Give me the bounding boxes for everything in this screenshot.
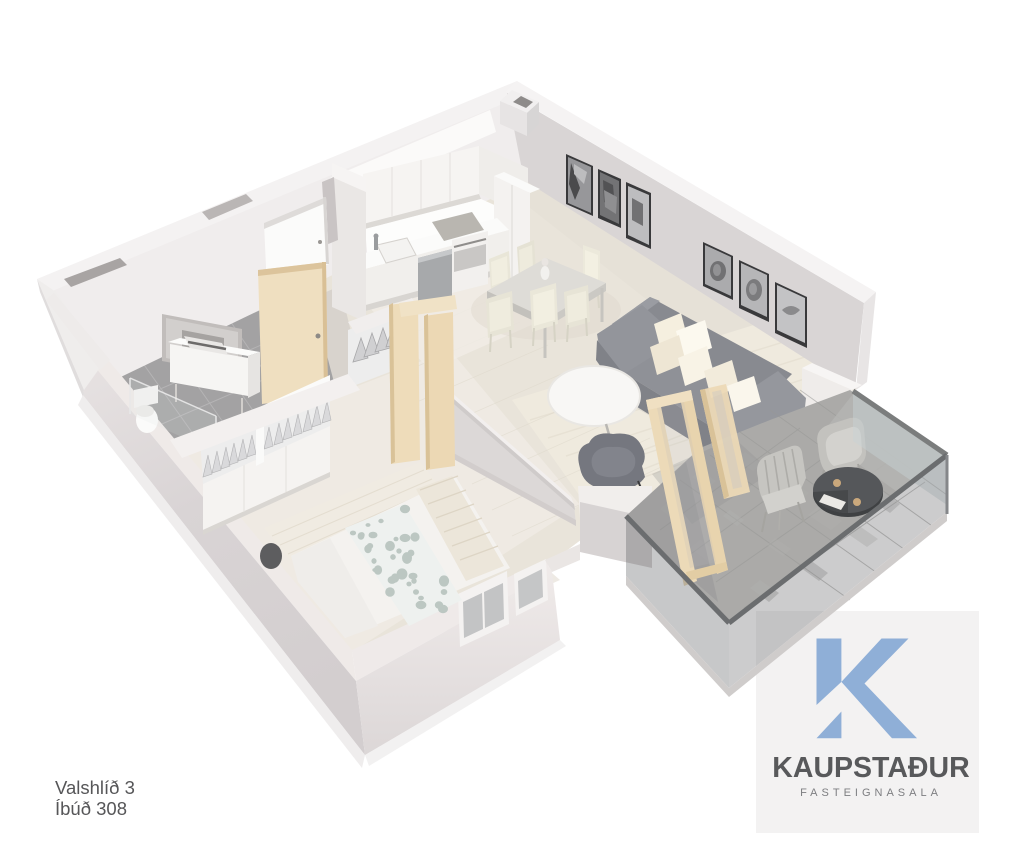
svg-text:Íbúð 308: Íbúð 308: [55, 798, 127, 819]
svg-text:FASTEIGNASALA: FASTEIGNASALA: [800, 787, 942, 799]
svg-text:KAUPSTAÐUR: KAUPSTAÐUR: [772, 752, 969, 784]
svg-text:Valshlíð 3: Valshlíð 3: [55, 777, 135, 798]
